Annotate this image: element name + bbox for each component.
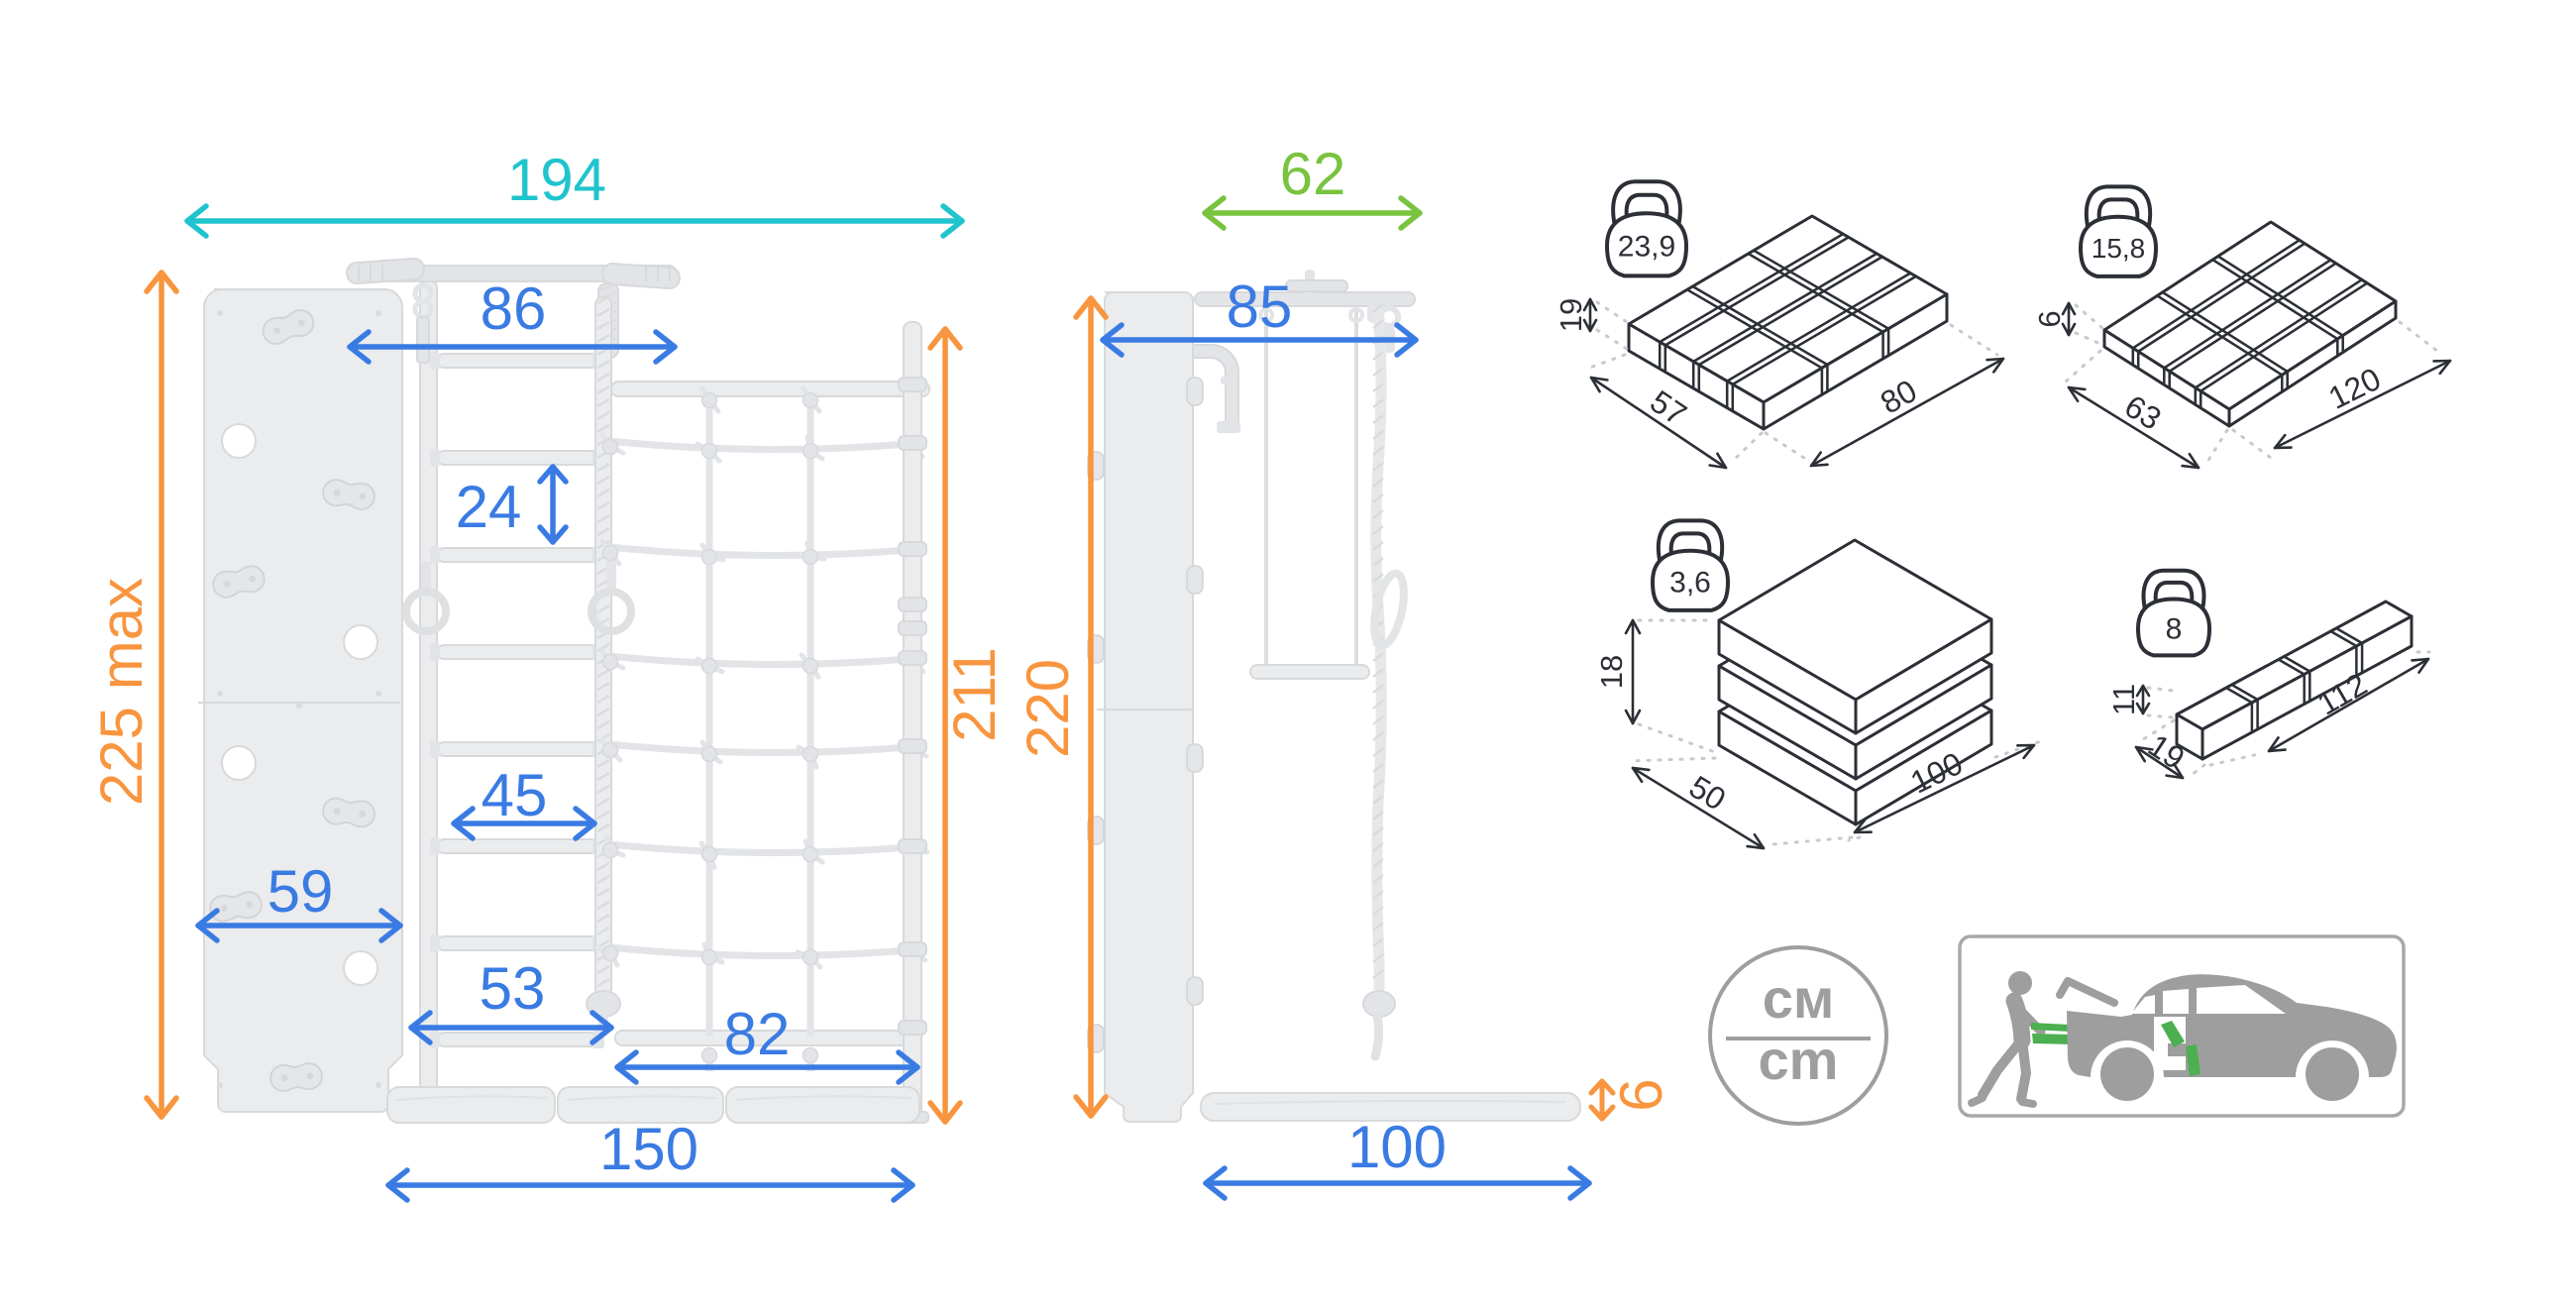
svg-text:6: 6 [2032, 310, 2067, 327]
svg-text:194: 194 [507, 147, 606, 213]
svg-text:8: 8 [2166, 613, 2183, 646]
svg-text:86: 86 [481, 275, 547, 342]
svg-text:23,9: 23,9 [1618, 231, 1675, 264]
svg-text:6: 6 [1608, 1078, 1674, 1111]
svg-text:15,8: 15,8 [2092, 233, 2146, 264]
svg-text:225 max: 225 max [88, 578, 155, 806]
svg-text:82: 82 [724, 1001, 791, 1067]
svg-text:85: 85 [1227, 274, 1293, 340]
svg-text:59: 59 [268, 858, 334, 925]
svg-text:53: 53 [480, 955, 546, 1022]
svg-text:24: 24 [456, 474, 522, 540]
svg-text:211: 211 [941, 647, 1008, 742]
svg-text:150: 150 [599, 1116, 698, 1182]
svg-text:cm: cm [1759, 1029, 1839, 1091]
svg-text:18: 18 [1594, 655, 1629, 689]
svg-text:220: 220 [1015, 659, 1081, 758]
svg-text:3,6: 3,6 [1669, 567, 1711, 600]
svg-text:19: 19 [1554, 298, 1588, 332]
svg-text:11: 11 [2106, 684, 2141, 715]
svg-text:см: см [1763, 967, 1835, 1030]
svg-text:100: 100 [1347, 1114, 1447, 1180]
svg-text:45: 45 [482, 762, 548, 828]
svg-text:62: 62 [1280, 141, 1346, 207]
